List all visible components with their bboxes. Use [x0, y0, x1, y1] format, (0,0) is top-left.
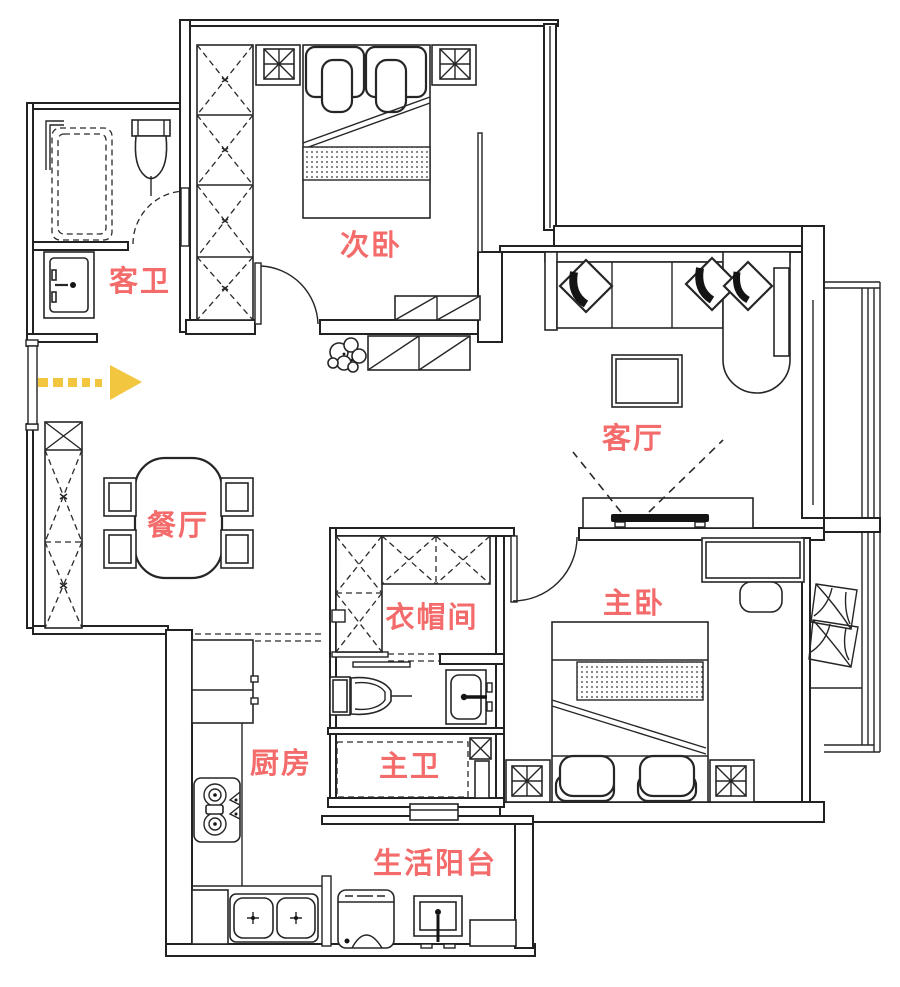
room-living-room: 客厅: [328, 252, 790, 528]
shelf-icon: [470, 920, 516, 946]
room-master-bathroom: 主卫: [330, 662, 492, 820]
nightstand-left-icon: [506, 760, 550, 802]
room-label-master-bedroom: 主卧: [603, 587, 665, 620]
nightstand-right-icon: [710, 760, 754, 802]
corner-counter: [192, 890, 228, 944]
gas-stove-icon: [194, 778, 240, 842]
room-label-guest-bathroom: 客卫: [109, 264, 171, 298]
cloakroom-opening: [388, 654, 440, 661]
shoe-cabinet-icon: [45, 422, 82, 628]
wardrobe-icon: [197, 45, 253, 320]
room-label-secondary-bedroom: 次卧: [340, 229, 402, 262]
room-label-master-bathroom: 主卫: [379, 750, 441, 783]
room-label-kitchen: 厨房: [250, 747, 312, 780]
room-label-cloakroom: 衣帽间: [385, 601, 478, 634]
room-label-living-room: 客厅: [602, 421, 664, 455]
threshold: [410, 804, 458, 820]
room-kitchen: 厨房: [192, 634, 323, 944]
washbasin-icon: [44, 252, 94, 318]
washing-machine-icon: [338, 890, 394, 948]
bedroom-door-icon: [255, 263, 318, 324]
hallway-cabinet-icon: [368, 336, 470, 370]
nightstand-right-icon: [432, 45, 476, 85]
room-master-bedroom: 主卧: [506, 536, 804, 802]
folding-door-arc: [133, 191, 186, 244]
door-jamb: [181, 188, 189, 246]
room-dining-room: 餐厅: [45, 422, 253, 628]
shelf: [353, 662, 410, 667]
bed-icon: [552, 622, 708, 802]
fridge-icon: [192, 640, 258, 723]
vent-shaft-icon: [470, 738, 491, 798]
desk-chair-icon: [740, 582, 782, 612]
bay-cushions-icon: [809, 584, 858, 667]
side-table-icon: [774, 268, 789, 356]
room-label-service-balcony: 生活阳台: [373, 846, 497, 880]
toilet-icon: [132, 120, 170, 196]
bedroom-door-icon: [511, 536, 577, 602]
desk-icon: [702, 538, 804, 612]
l-wardrobe-icon: [332, 536, 490, 652]
room-label-dining-room: 餐厅: [147, 509, 209, 542]
washbasin-icon: [446, 670, 492, 724]
nightstand-left-icon: [256, 45, 300, 85]
room-cloakroom: 衣帽间: [332, 536, 490, 661]
balcony-door-leaf: [322, 876, 331, 946]
entry-arrow: [38, 365, 142, 400]
room-secondary-bedroom: 次卧: [197, 45, 480, 324]
plant-icon: [328, 338, 366, 372]
tv-icon: [611, 514, 709, 522]
floor-plan: 客卫: [0, 0, 900, 987]
room-service-balcony: 生活阳台: [322, 846, 516, 948]
toilet-icon: [330, 677, 412, 715]
room-guest-bathroom: 客卫: [44, 120, 189, 318]
tv-cabinet-icon: [583, 498, 753, 528]
foot-cabinet-icon: [395, 296, 480, 320]
kitchen-sink-icon: [230, 894, 318, 942]
mop-basin-icon: [414, 896, 462, 948]
bed-icon: [303, 45, 430, 218]
coffee-table-icon: [612, 355, 682, 407]
entry-door-leaf: [28, 346, 37, 424]
shower-area-icon: [52, 128, 112, 240]
